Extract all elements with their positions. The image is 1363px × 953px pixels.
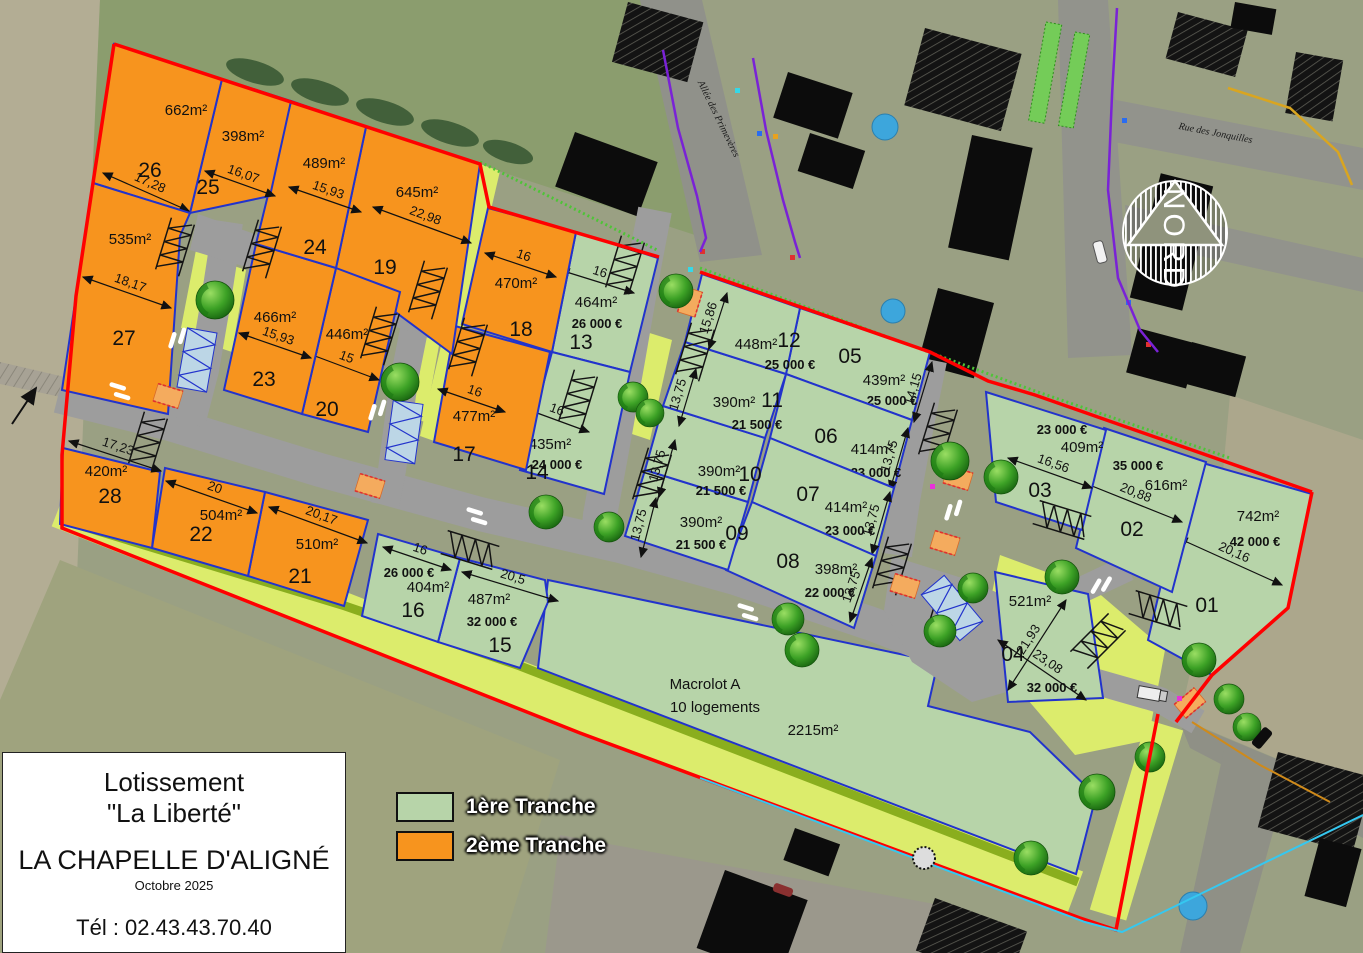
lot-area-label: 489m² [303, 155, 346, 172]
lot-area-label: 662m² [165, 102, 208, 119]
pool [881, 299, 905, 323]
tree-icon [196, 281, 234, 319]
contact-phone: Tél : 02.43.43.70.40 [3, 915, 345, 941]
tree-icon [772, 603, 804, 635]
plan-title-line1: Lotissement [3, 767, 345, 798]
lot-area-label: 390m² [713, 394, 756, 411]
tree-icon [924, 615, 956, 647]
lot-price-label: 21 500 € [696, 483, 747, 498]
lot-area-label: 477m² [453, 408, 496, 425]
plan-title-line2: "La Liberté" [3, 798, 345, 829]
lot-price-label: 21 500 € [676, 537, 727, 552]
lot-area-label: 398m² [815, 561, 858, 578]
site-plan-page: Macrolot A 10 logements 2215m² 20,160174… [0, 0, 1363, 953]
lot-area-label: 404m² [407, 579, 450, 596]
survey-marker [930, 484, 935, 489]
lot-area-label: 504m² [200, 507, 243, 524]
compass-label: NORD [1157, 188, 1190, 292]
lot-price-label: 23 000 € [825, 523, 876, 538]
tree-icon [636, 399, 664, 427]
lot-number-label: 20 [315, 398, 338, 421]
lot-area-label: 487m² [468, 591, 511, 608]
pool [872, 114, 898, 140]
macrolot-title: Macrolot A [670, 676, 741, 693]
well-icon [913, 847, 935, 869]
lot-price-label: 21 500 € [732, 417, 783, 432]
lot-area-label: 446m² [326, 326, 369, 343]
lot-price-label: 32 000 € [1027, 680, 1078, 695]
lot-area-label: 616m² [1145, 477, 1188, 494]
lot-price-label: 24 000 € [532, 457, 583, 472]
lot-area-label: 466m² [254, 309, 297, 326]
lot-number-label: 24 [303, 236, 327, 259]
tranche1-swatch [396, 792, 454, 822]
lot-price-label: 32 000 € [467, 614, 518, 629]
lot-number-label: 23 [252, 368, 275, 391]
lot-price-label: 35 000 € [1113, 458, 1164, 473]
lot-number-label: 25 [196, 176, 219, 199]
lot-number-label: 01 [1195, 594, 1218, 617]
lot-price-label: 26 000 € [572, 316, 623, 331]
lot-area-label: 742m² [1237, 508, 1280, 525]
survey-marker [757, 131, 762, 136]
tranche2-label: 2ème Tranche [466, 834, 606, 858]
lot-area-label: 390m² [698, 463, 741, 480]
lot-number-label: 13 [569, 331, 592, 354]
lot-price-label: 23 000 € [1037, 422, 1088, 437]
lot-number-label: 27 [112, 327, 135, 350]
lot-area-label: 439m² [863, 372, 906, 389]
survey-marker [688, 267, 693, 272]
tree-icon [958, 573, 988, 603]
lot-area-label: 420m² [85, 463, 128, 480]
survey-marker [1177, 696, 1182, 701]
tree-icon [381, 363, 419, 401]
title-block: Lotissement "La Liberté" LA CHAPELLE D'A… [2, 752, 346, 953]
lot-number-label: 19 [373, 256, 396, 279]
lot-area-label: 398m² [222, 128, 265, 145]
tree-icon [659, 274, 693, 308]
lot-area-label: 464m² [575, 294, 618, 311]
lot-number-label: 18 [509, 318, 532, 341]
tranche1-label: 1ère Tranche [466, 795, 596, 819]
tree-icon [931, 442, 969, 480]
pool [1179, 892, 1207, 920]
lot-area-label: 645m² [396, 184, 439, 201]
lot-number-label: 12 [777, 329, 800, 352]
tree-icon [1182, 643, 1216, 677]
tree-icon [1014, 841, 1048, 875]
lot-number-label: 16 [401, 599, 424, 622]
lot-number-label: 15 [488, 634, 511, 657]
tree-icon [984, 460, 1018, 494]
lot-number-label: 28 [98, 485, 121, 508]
tree-icon [1045, 560, 1079, 594]
lot-area-label: 448m² [735, 336, 778, 353]
macrolot-area: 2215m² [788, 722, 839, 739]
survey-marker [735, 88, 740, 93]
lot-area-label: 510m² [296, 536, 339, 553]
tranche2-swatch [396, 831, 454, 861]
lot-area-label: 521m² [1009, 593, 1052, 610]
lot-price-label: 26 000 € [384, 565, 435, 580]
tree-icon [1214, 684, 1244, 714]
city-name: LA CHAPELLE D'ALIGNÉ [3, 845, 345, 876]
lot-area-label: 435m² [529, 436, 572, 453]
lot-area-label: 390m² [680, 514, 723, 531]
legend: 1ère Tranche 2ème Tranche [396, 792, 606, 870]
lot-number-label: 09 [725, 522, 748, 545]
lot-number-label: 17 [452, 443, 475, 466]
lot-price-label: 22 000 € [805, 585, 856, 600]
lot-area-label: 414m² [825, 499, 868, 516]
survey-marker [1122, 118, 1127, 123]
lot-number-label: 21 [288, 565, 311, 588]
lot-area-label: 409m² [1061, 439, 1104, 456]
plan-date: Octobre 2025 [3, 878, 345, 893]
macrolot-subtitle: 10 logements [670, 699, 760, 716]
lot-number-label: 02 [1120, 518, 1143, 541]
lot-number-label: 04 [1001, 643, 1025, 666]
lot-number-label: 07 [796, 483, 819, 506]
tree-icon [529, 495, 563, 529]
lot-number-label: 11 [761, 389, 783, 412]
tree-icon [594, 512, 624, 542]
lot-number-label: 03 [1028, 479, 1051, 502]
legend-row-tranche1: 1ère Tranche [396, 792, 606, 822]
lot-area-label: 535m² [109, 231, 152, 248]
lot-number-label: 06 [814, 425, 837, 448]
lot-area-label: 470m² [495, 275, 538, 292]
tree-icon [785, 633, 819, 667]
lot-number-label: 08 [776, 550, 799, 573]
lot-number-label: 26 [138, 159, 161, 182]
survey-marker [790, 255, 795, 260]
tree-icon [1079, 774, 1115, 810]
survey-marker [773, 134, 778, 139]
lot-price-label: 25 000 € [765, 357, 816, 372]
legend-row-tranche2: 2ème Tranche [396, 831, 606, 861]
lot-price-label: 42 000 € [1230, 534, 1281, 549]
lot-number-label: 05 [838, 345, 861, 368]
lot-area-label: 414m² [851, 441, 894, 458]
lot-number-label: 22 [189, 523, 212, 546]
